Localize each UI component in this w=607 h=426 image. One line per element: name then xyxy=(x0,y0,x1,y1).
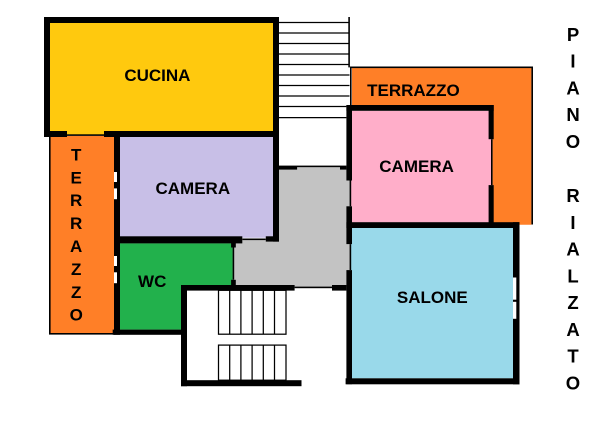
svg-text:R: R xyxy=(566,185,579,206)
svg-text:CAMERA: CAMERA xyxy=(379,157,454,176)
svg-text:N: N xyxy=(566,104,579,125)
svg-text:E: E xyxy=(71,168,82,187)
svg-text:P: P xyxy=(567,24,579,45)
svg-text:TERRAZZO: TERRAZZO xyxy=(367,81,460,100)
svg-text:T: T xyxy=(567,346,579,367)
svg-text:O: O xyxy=(566,372,580,393)
svg-text:A: A xyxy=(70,237,82,256)
svg-text:A: A xyxy=(566,77,579,98)
svg-text:I: I xyxy=(570,51,575,72)
svg-text:R: R xyxy=(70,214,82,233)
svg-text:O: O xyxy=(566,131,580,152)
svg-text:SALONE: SALONE xyxy=(397,288,468,307)
svg-text:I: I xyxy=(570,212,575,233)
svg-text:WC: WC xyxy=(138,272,166,291)
svg-text:CUCINA: CUCINA xyxy=(124,66,190,85)
svg-text:O: O xyxy=(70,306,83,325)
svg-text:T: T xyxy=(71,145,82,164)
svg-text:L: L xyxy=(567,265,578,286)
svg-text:A: A xyxy=(566,319,579,340)
svg-text:Z: Z xyxy=(567,292,578,313)
svg-text:CAMERA: CAMERA xyxy=(155,179,230,198)
svg-text:A: A xyxy=(566,239,579,260)
svg-text:R: R xyxy=(70,191,82,210)
svg-text:Z: Z xyxy=(71,283,81,302)
svg-text:Z: Z xyxy=(71,260,81,279)
